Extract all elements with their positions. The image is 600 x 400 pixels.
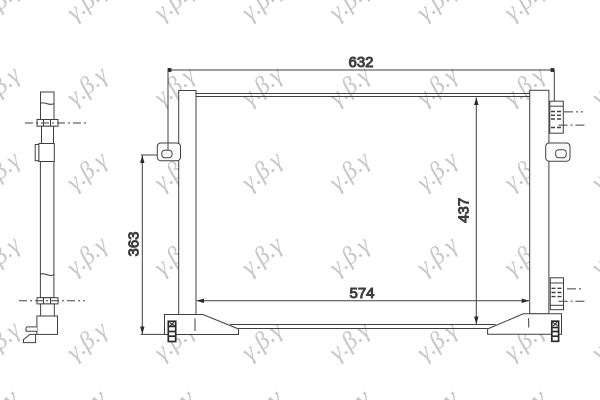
svg-text:γ: γ [83,382,114,400]
svg-text:γ: γ [259,382,290,400]
svg-text:γ: γ [171,382,202,400]
svg-text:γ: γ [0,382,26,400]
svg-text:γ: γ [347,382,378,400]
svg-text:574: 574 [349,285,374,302]
svg-text:γ: γ [523,382,554,400]
svg-text:γ: γ [435,382,466,400]
svg-text:437: 437 [456,198,473,223]
svg-text:632: 632 [348,54,373,71]
svg-text:363: 363 [126,231,143,256]
